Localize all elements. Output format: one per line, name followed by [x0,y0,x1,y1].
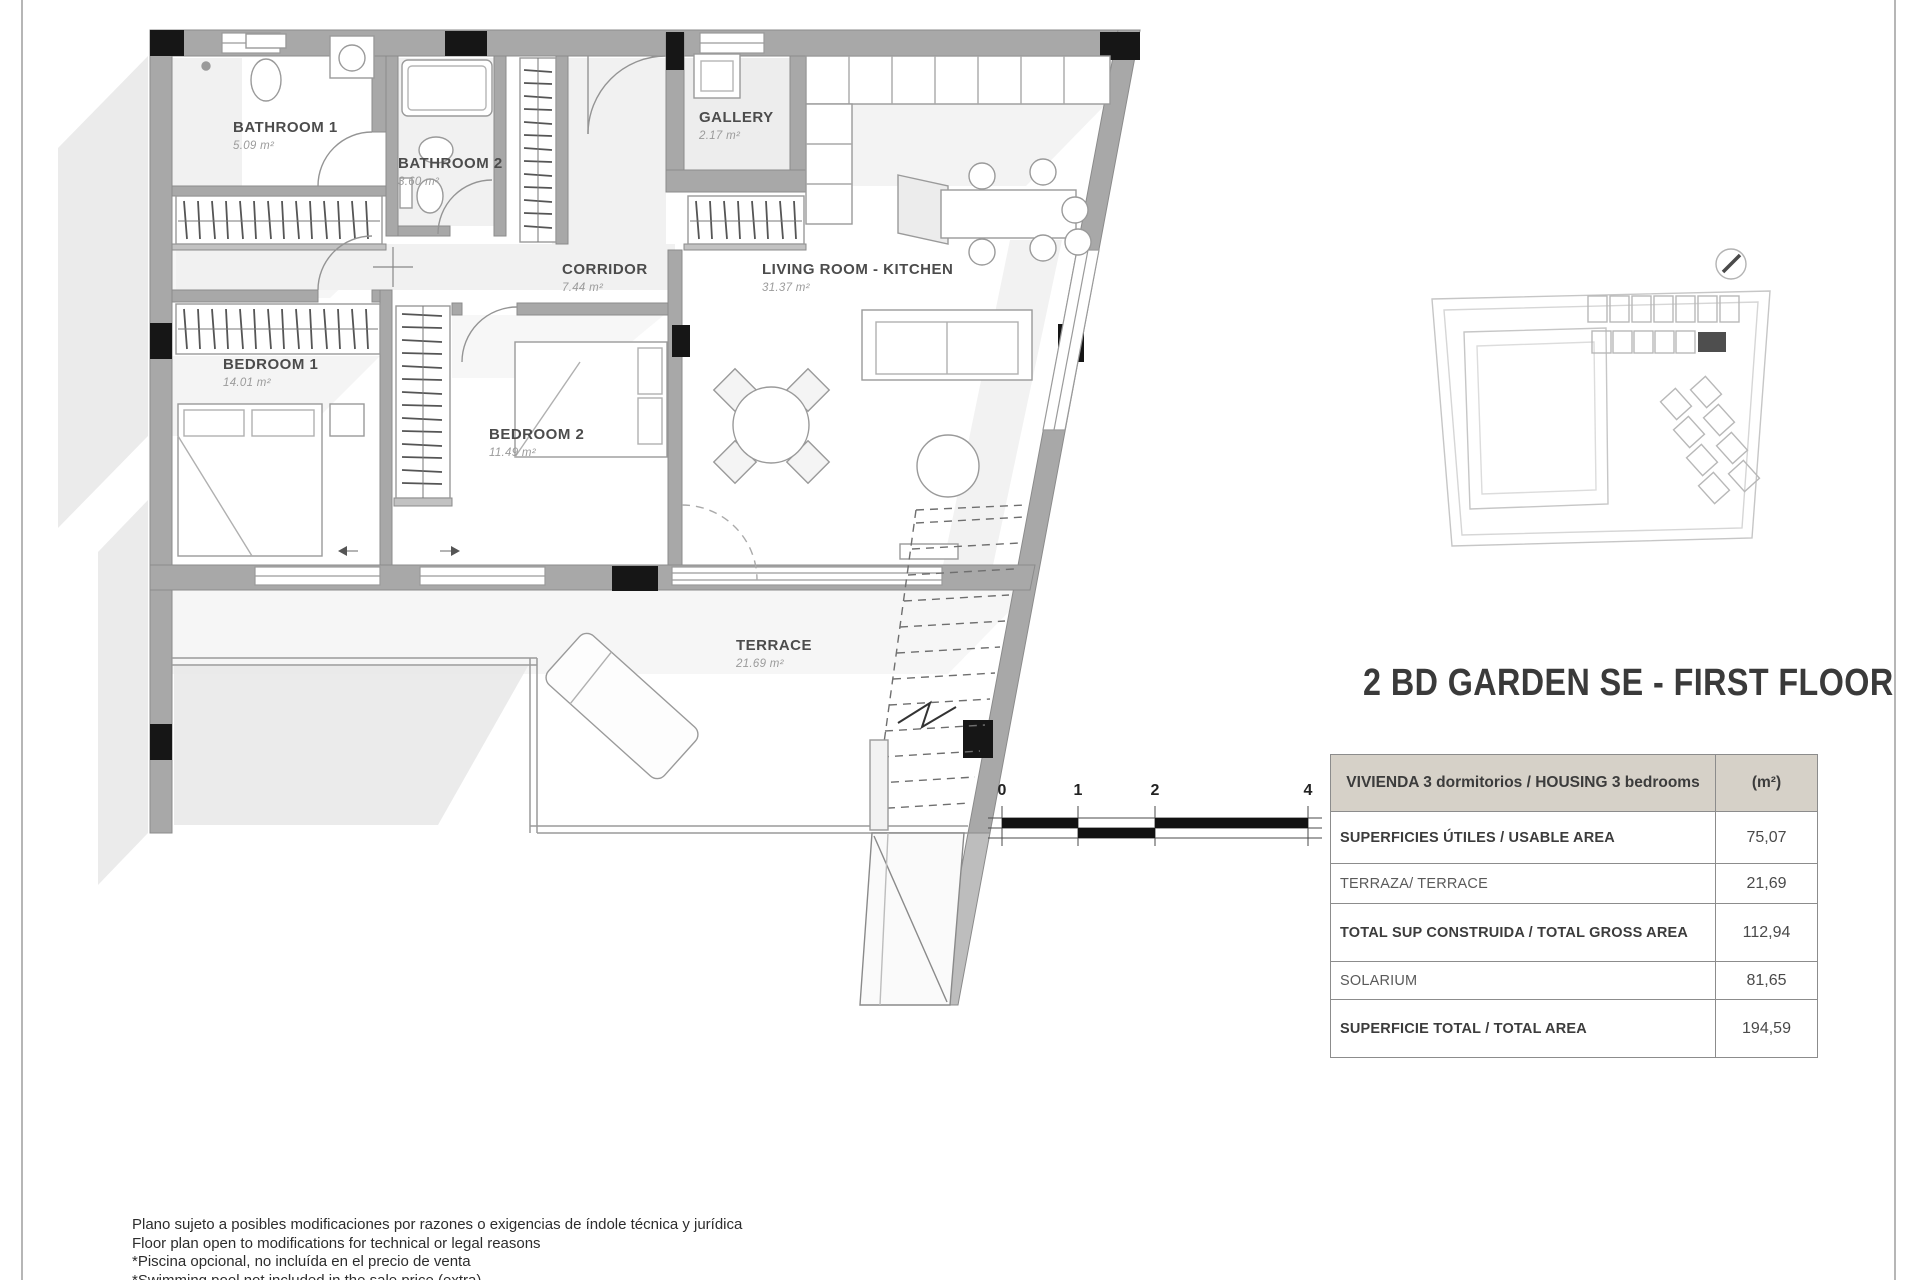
row-label: TOTAL SUP CONSTRUIDA / TOTAL GROSS AREA [1331,904,1716,962]
room-area: 5.09 m² [233,140,338,153]
row-label: SUPERFICIES ÚTILES / USABLE AREA [1331,812,1716,864]
scale-bar [988,806,1322,846]
page-title: 2 BD GARDEN SE - FIRST FLOOR [1363,662,1783,705]
room-label-bathroom2: BATHROOM 2 3.60 m² [398,156,503,188]
scale-bar-label-2: 2 [1151,782,1160,800]
room-name: BATHROOM 1 [233,119,338,136]
room-area: 14.01 m² [223,377,318,390]
table-header-label: VIVIENDA 3 dormitorios / HOUSING 3 bedro… [1331,755,1716,812]
room-area: 11.49 m² [489,447,584,460]
footnote-line: *Piscina opcional, no incluída en el pre… [132,1253,742,1272]
row-label: TERRAZA/ TERRACE [1331,864,1716,904]
footnote-line: *Swimming pool not included in the sale … [132,1272,742,1280]
room-name: CORRIDOR [562,261,648,278]
footnote-line: Floor plan open to modifications for tec… [132,1235,742,1254]
outer-shadows [58,56,148,885]
row-value: 194,59 [1716,1000,1818,1058]
room-name: LIVING ROOM - KITCHEN [762,261,953,278]
room-area: 31.37 m² [762,282,953,295]
room-label-corridor: CORRIDOR 7.44 m² [562,262,648,294]
room-label-terrace: TERRACE 21.69 m² [736,638,812,670]
table-header-unit: (m²) [1716,755,1818,812]
row-label: SOLARIUM [1331,962,1716,1000]
scale-bar-label-0: 0 [998,782,1007,800]
room-label-bedroom2: BEDROOM 2 11.49 m² [489,427,584,459]
room-area: 7.44 m² [562,282,648,295]
area-summary-table: VIVIENDA 3 dormitorios / HOUSING 3 bedro… [1330,754,1818,1058]
highlighted-unit [1698,332,1726,352]
row-value: 75,07 [1716,812,1818,864]
room-name: GALLERY [699,109,774,126]
table-row-gross-area: TOTAL SUP CONSTRUIDA / TOTAL GROSS AREA … [1331,904,1818,962]
north-arrow-icon [1716,249,1746,279]
room-label-bathroom1: BATHROOM 1 5.09 m² [233,120,338,152]
site-key-plan [1432,291,1770,546]
room-name: BEDROOM 1 [223,356,318,373]
room-name: TERRACE [736,637,812,654]
footnote-line: Plano sujeto a posibles modificaciones p… [132,1216,742,1235]
table-row-total-area: SUPERFICIE TOTAL / TOTAL AREA 194,59 [1331,1000,1818,1058]
table-row-solarium: SOLARIUM 81,65 [1331,962,1818,1000]
room-name: BATHROOM 2 [398,155,503,172]
scale-bar-label-1: 1 [1074,782,1083,800]
room-name: BEDROOM 2 [489,426,584,443]
table-row-usable-area: SUPERFICIES ÚTILES / USABLE AREA 75,07 [1331,812,1818,864]
room-label-gallery: GALLERY 2.17 m² [699,110,774,142]
row-label: SUPERFICIE TOTAL / TOTAL AREA [1331,1000,1716,1058]
row-value: 112,94 [1716,904,1818,962]
floor-plan-page: BATHROOM 1 5.09 m² BATHROOM 2 3.60 m² GA… [0,0,1920,1280]
scale-bar-label-4: 4 [1304,782,1313,800]
floor-plan-drawing [0,0,1920,1280]
room-label-living-kitchen: LIVING ROOM - KITCHEN 31.37 m² [762,262,953,294]
row-value: 21,69 [1716,864,1818,904]
room-label-bedroom1: BEDROOM 1 14.01 m² [223,357,318,389]
room-area: 2.17 m² [699,130,774,143]
disclaimer-footnotes: Plano sujeto a posibles modificaciones p… [132,1216,742,1280]
row-value: 81,65 [1716,962,1818,1000]
room-area: 21.69 m² [736,658,812,671]
table-row-terrace: TERRAZA/ TERRACE 21,69 [1331,864,1818,904]
room-area: 3.60 m² [398,176,503,189]
